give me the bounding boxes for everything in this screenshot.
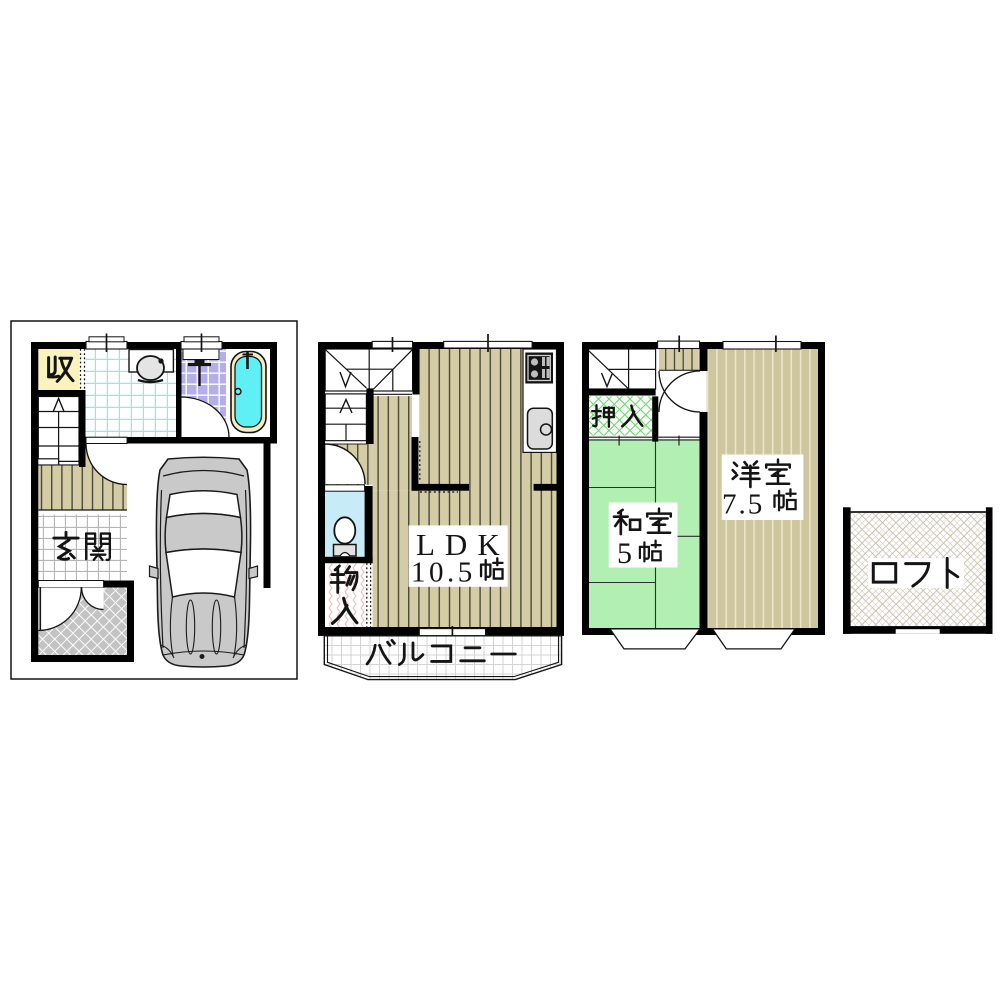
- svg-text:7.5: 7.5: [722, 489, 764, 521]
- svg-text:5: 5: [617, 537, 632, 570]
- svg-text:10.5: 10.5: [411, 557, 476, 589]
